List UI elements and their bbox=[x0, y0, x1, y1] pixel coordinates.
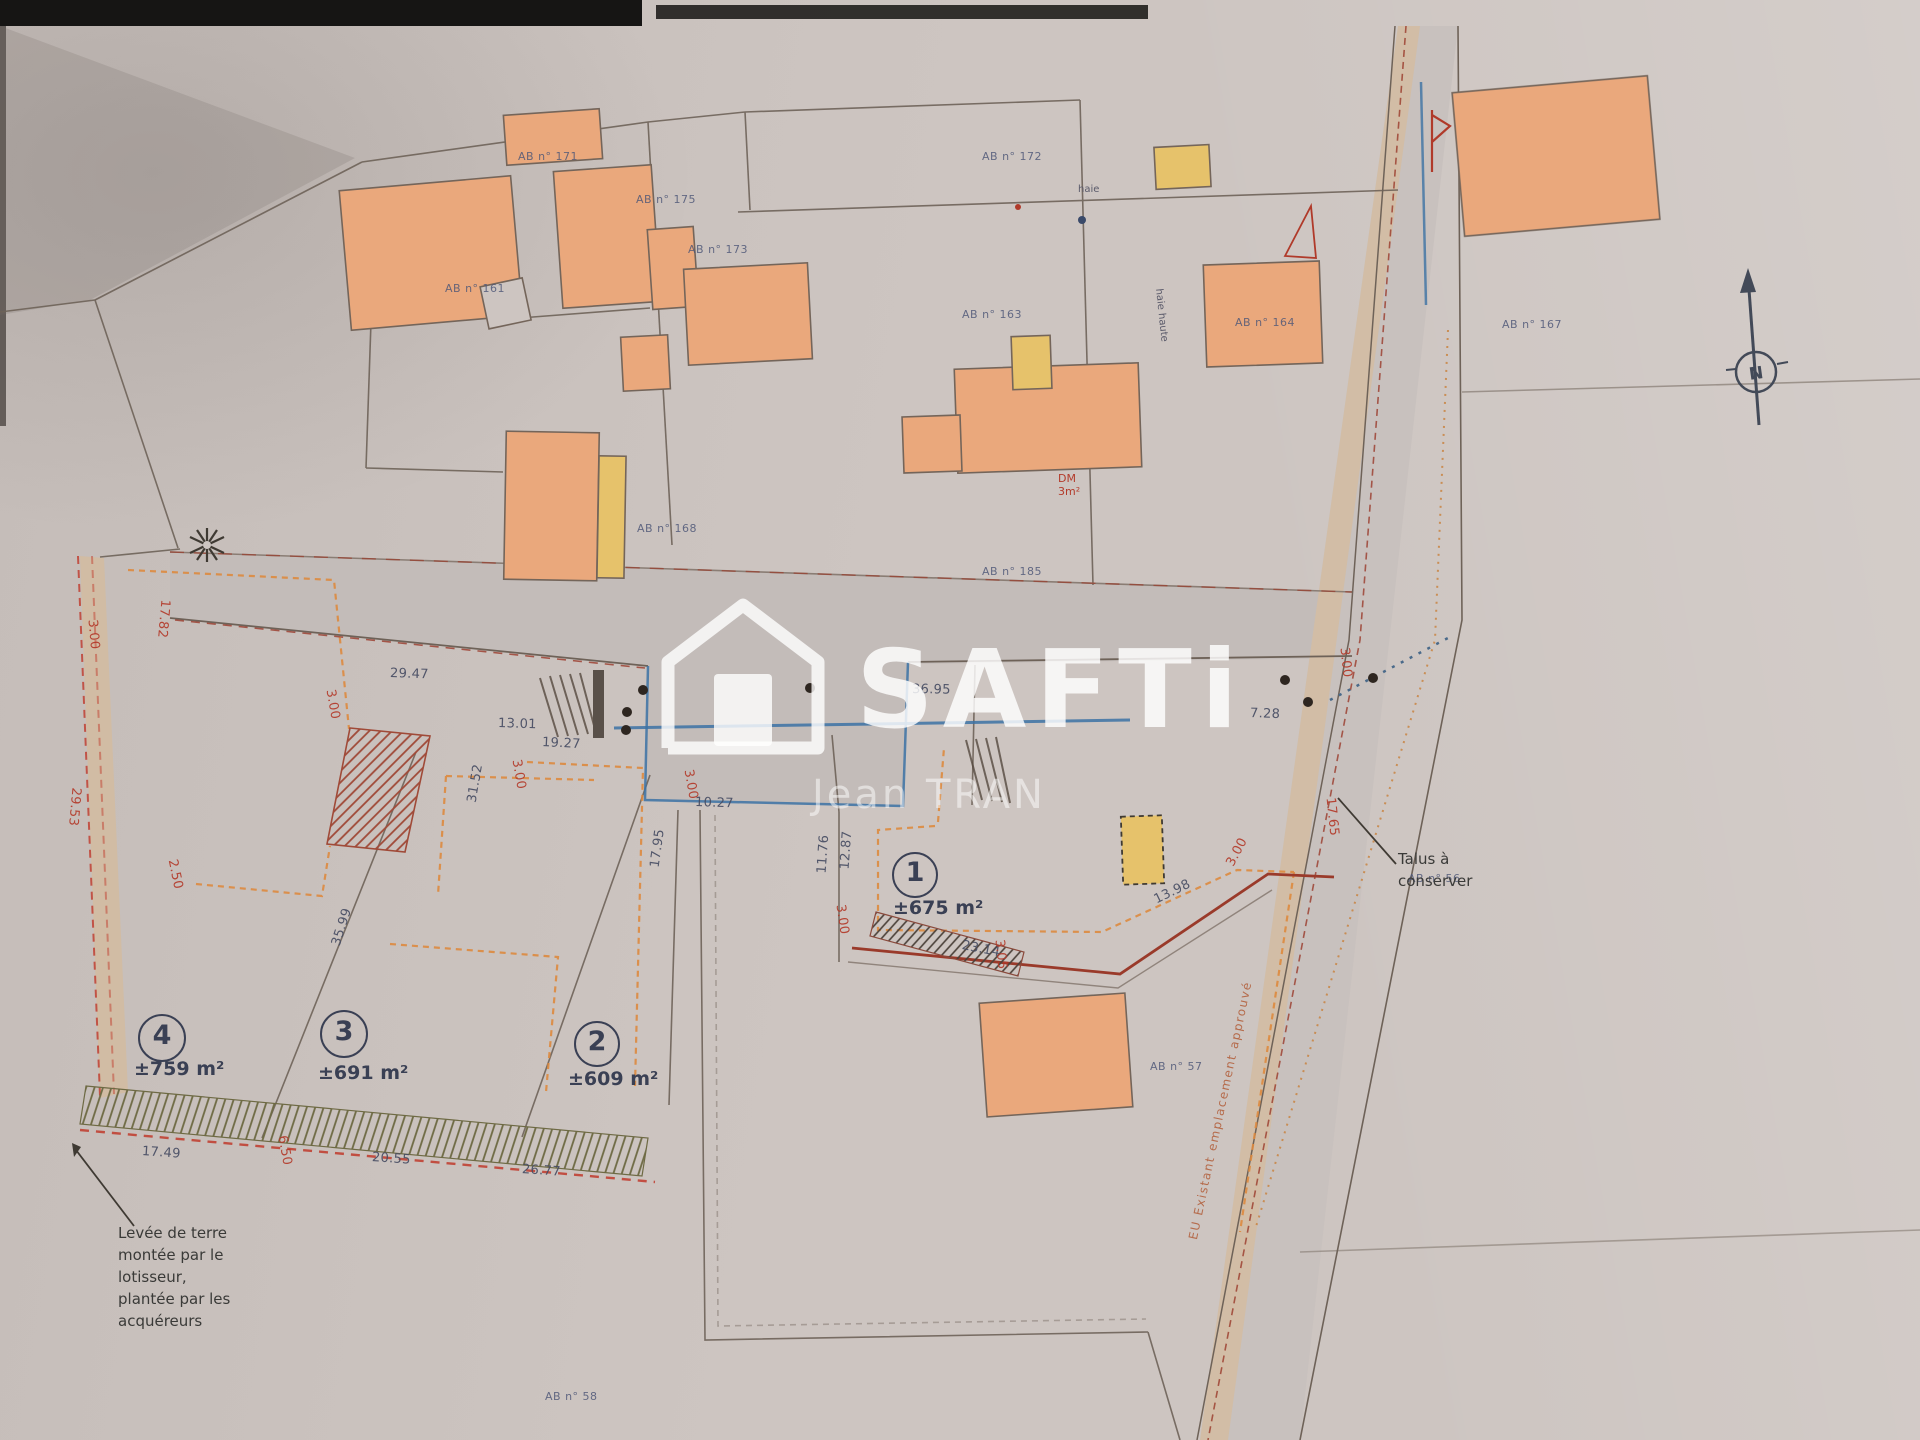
dimension-label: 3.00 bbox=[833, 903, 852, 935]
dimension-label: 3.00 bbox=[1337, 647, 1355, 679]
dm-area-line: 3m² bbox=[1058, 485, 1080, 498]
dimension-label: 6.50 bbox=[275, 1134, 295, 1166]
dimension-label: 3.00 bbox=[509, 758, 529, 790]
dimension-label: 35.99 bbox=[329, 906, 355, 947]
parcel-label: AB n° 185 bbox=[982, 565, 1042, 578]
lot-area-label: ±759 m² bbox=[134, 1058, 224, 1080]
dimension-label: 31.52 bbox=[465, 763, 486, 804]
lot-area-label: ±675 m² bbox=[893, 897, 983, 919]
parcel-label: AB n° 161 bbox=[445, 282, 505, 295]
lot-area-label: ±691 m² bbox=[318, 1062, 408, 1084]
talus-note: Talus à conserver bbox=[1398, 848, 1472, 892]
talus-note-line2: conserver bbox=[1398, 870, 1472, 892]
dimension-label: 29.47 bbox=[390, 666, 429, 682]
dimension-label: 7.28 bbox=[1250, 706, 1281, 722]
parcel-label: AB n° 58 bbox=[545, 1390, 598, 1403]
levee-note-line: acquéreurs bbox=[118, 1310, 230, 1332]
dimension-label: 17.65 bbox=[1323, 797, 1342, 837]
levee-note-line: lotisseur, bbox=[118, 1266, 230, 1288]
dimension-label: 3.00 bbox=[1223, 835, 1250, 869]
dimension-label: 29.53 bbox=[65, 787, 83, 827]
site-plan-photo: N 29.4713.0119.2710.2736.953.003.003.003… bbox=[0, 0, 1920, 1440]
dm-note: DM 3m² bbox=[1058, 472, 1080, 498]
levee-note: Levée de terre montée par le lotisseur, … bbox=[118, 1222, 230, 1332]
dimension-label: 12.87 bbox=[838, 830, 856, 870]
dimension-label: 17.49 bbox=[141, 1144, 181, 1162]
parcel-label: AB n° 172 bbox=[982, 150, 1042, 163]
levee-note-line: plantée par les bbox=[118, 1288, 230, 1310]
dimension-label: 3.05 bbox=[992, 939, 1010, 971]
lot-number-badge: 3 bbox=[320, 1010, 368, 1058]
levee-note-line: Levée de terre bbox=[118, 1222, 230, 1244]
parcel-label: AB n° 173 bbox=[688, 243, 748, 256]
dimension-label: 3.00 bbox=[85, 619, 103, 650]
dimension-label: 13.98 bbox=[1152, 877, 1193, 907]
dimension-label: 36.95 bbox=[912, 682, 951, 698]
dimension-label: 20.55 bbox=[371, 1150, 411, 1168]
dimension-label: 13.01 bbox=[498, 716, 537, 732]
parcel-label: AB n° 175 bbox=[636, 193, 696, 206]
haie-label: haie bbox=[1078, 184, 1099, 195]
talus-note-line1: Talus à bbox=[1398, 848, 1472, 870]
dimension-label: 2.50 bbox=[165, 858, 186, 891]
dm-note-line: DM bbox=[1058, 472, 1080, 485]
dimension-label: 17.95 bbox=[648, 828, 668, 868]
lot-area-label: ±609 m² bbox=[568, 1068, 658, 1090]
label-overlay: 29.4713.0119.2710.2736.953.003.003.003.0… bbox=[0, 0, 1920, 1440]
lot-number-badge: 4 bbox=[138, 1014, 186, 1062]
lot-number-badge: 1 bbox=[892, 852, 938, 898]
parcel-label: AB n° 57 bbox=[1150, 1060, 1203, 1073]
dimension-label: 3.00 bbox=[681, 768, 701, 800]
dimension-label: 19.27 bbox=[542, 735, 581, 752]
lot-number-badge: 2 bbox=[574, 1021, 620, 1067]
parcel-label: AB n° 163 bbox=[962, 308, 1022, 321]
dimension-label: 17.82 bbox=[154, 599, 172, 639]
parcel-label: AB n° 164 bbox=[1235, 316, 1295, 329]
levee-note-line: montée par le bbox=[118, 1244, 230, 1266]
parcel-label: AB n° 171 bbox=[518, 150, 578, 163]
parcel-label: AB n° 167 bbox=[1502, 318, 1562, 331]
parcel-label: AB n° 168 bbox=[637, 522, 697, 535]
dimension-label: 11.76 bbox=[815, 834, 833, 874]
dimension-label: 3.00 bbox=[323, 688, 343, 720]
dimension-label: 26.77 bbox=[521, 1162, 561, 1180]
